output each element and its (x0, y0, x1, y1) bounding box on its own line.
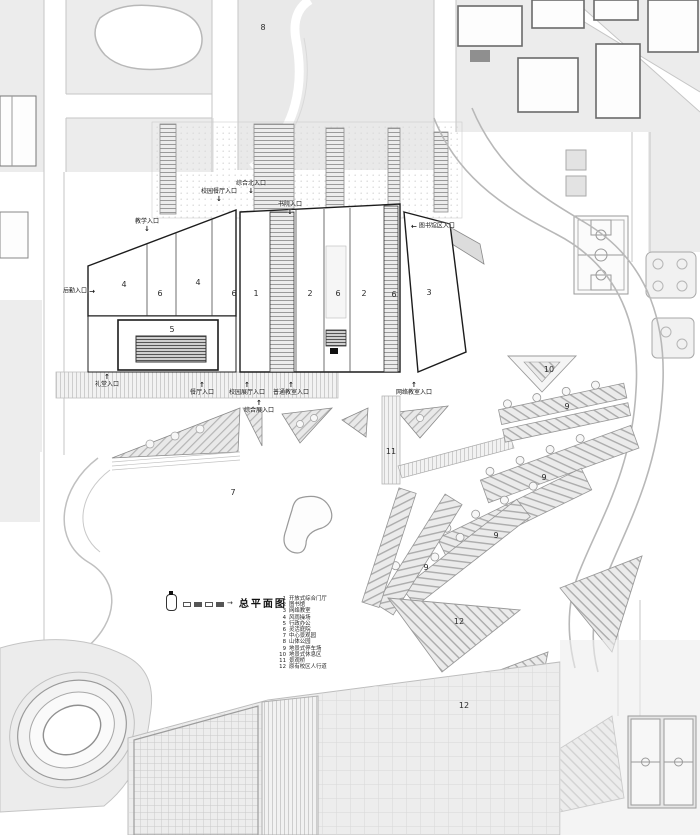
plaza-pond (284, 496, 332, 553)
left-s-road (64, 458, 112, 648)
south-road-band (56, 372, 338, 398)
auditorium-hatch (136, 336, 206, 362)
north-apron (152, 122, 462, 218)
pond (95, 5, 202, 69)
stair-strip (270, 212, 294, 372)
site-plan-page: 8464612626351091179991212 ↓ 教学入口 ↓ 校园餐厅入… (0, 0, 700, 835)
left-edge (0, 96, 64, 708)
basketball-court-top (574, 216, 628, 294)
main-building (88, 204, 484, 372)
stair-strip (384, 206, 398, 372)
zone-10 (508, 356, 576, 392)
bottom-paving (128, 640, 700, 835)
site-plan-drawing (0, 0, 700, 835)
basketball-courts-bottom (628, 716, 696, 808)
